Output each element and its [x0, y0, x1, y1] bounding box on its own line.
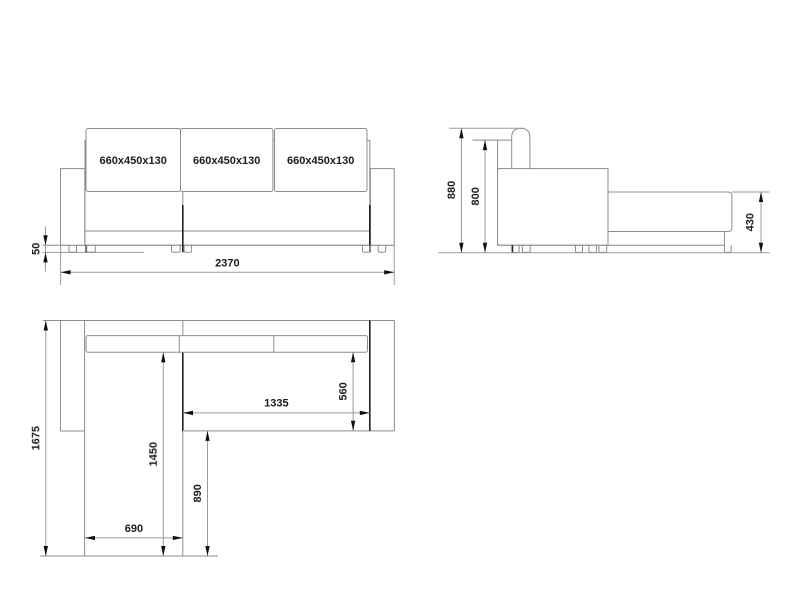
svg-text:660x450x130: 660x450x130 — [100, 155, 167, 167]
svg-text:2370: 2370 — [215, 258, 239, 270]
svg-text:430: 430 — [745, 213, 757, 231]
svg-text:1335: 1335 — [264, 398, 288, 410]
svg-text:1450: 1450 — [148, 442, 160, 466]
svg-text:690: 690 — [125, 523, 143, 535]
svg-text:560: 560 — [338, 382, 350, 400]
svg-text:50: 50 — [31, 243, 43, 255]
svg-text:1675: 1675 — [30, 426, 42, 450]
svg-text:660x450x130: 660x450x130 — [193, 155, 260, 167]
svg-text:660x450x130: 660x450x130 — [287, 155, 354, 167]
svg-text:800: 800 — [470, 187, 482, 205]
svg-text:880: 880 — [446, 181, 458, 199]
svg-text:890: 890 — [192, 484, 204, 502]
